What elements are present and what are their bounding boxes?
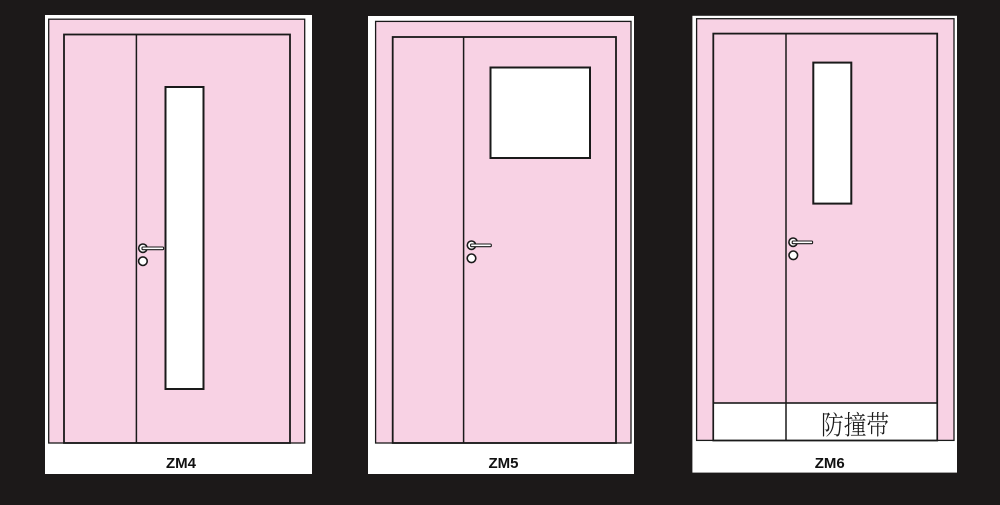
svg-text:ZM5: ZM5 (489, 455, 519, 472)
svg-text:ZM6: ZM6 (815, 455, 845, 472)
svg-text:ZM4: ZM4 (166, 455, 197, 472)
